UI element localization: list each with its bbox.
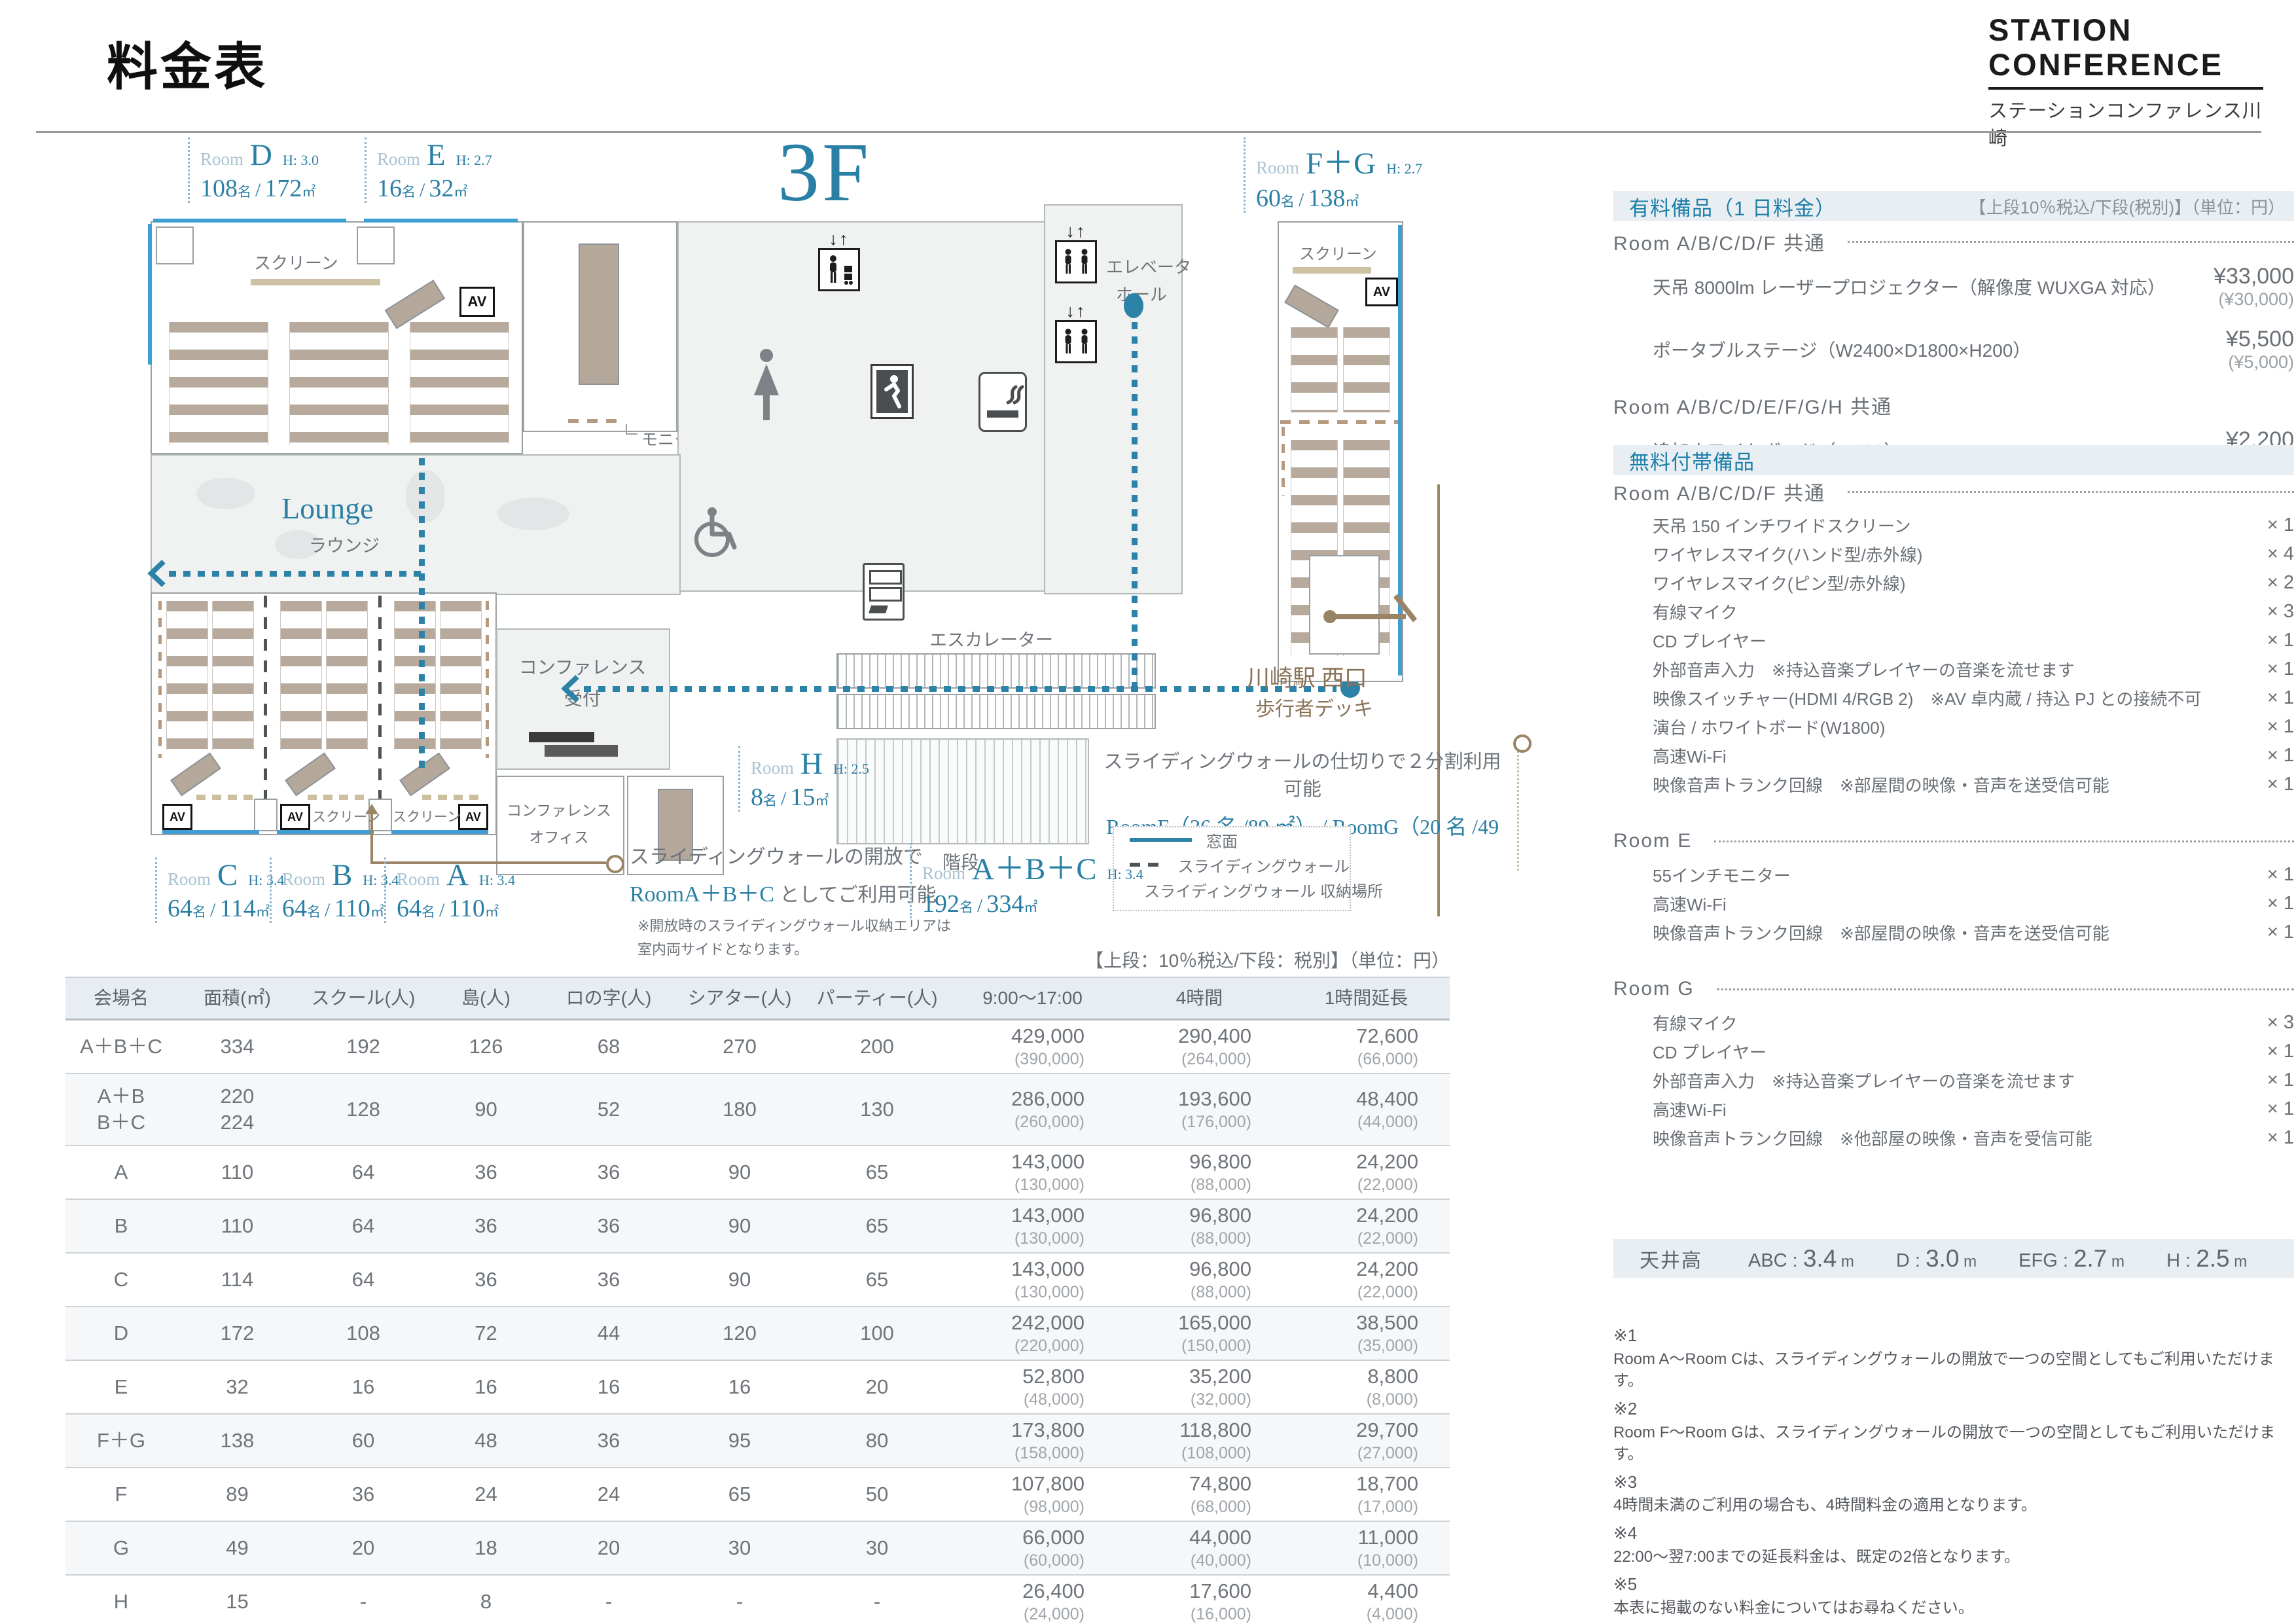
wheelchair-icon: [689, 504, 744, 562]
ceiling-unit: m: [1837, 1253, 1854, 1271]
price-tax-excluded: (260,000): [949, 1112, 1085, 1132]
venue-line: E: [65, 1374, 177, 1400]
room-tag-h: RoomHH: 2.58名/15㎡: [738, 746, 869, 812]
venue-line: D: [65, 1320, 177, 1346]
price-tax-included: ¥33,000: [2214, 264, 2294, 289]
price-table: 会場名面積(㎡)スクール(人)島(人)ロの字(人)シアター(人)パーティー(人)…: [65, 977, 1450, 1624]
cell-area: 89: [177, 1481, 298, 1507]
room-tag-height: H: 2.5: [833, 761, 869, 777]
cell-island: 36: [429, 1213, 543, 1239]
venue-line: B＋C: [65, 1110, 177, 1136]
free-equipment-title: 無料付帯備品: [1629, 446, 1755, 475]
cell-theater: 270: [674, 1034, 805, 1060]
free-equipment-item: 映像音声トランク回線 ※部屋間の映像・音声を送受信可能× 1: [1613, 918, 2294, 947]
free-item-qty: × 1: [2209, 630, 2294, 651]
price-tax-included: 29,700: [1283, 1418, 1418, 1443]
free-item-name: 映像音声トランク回線 ※部屋間の映像・音声を送受信可能: [1613, 772, 2209, 797]
cell-venue: A＋B＋C: [65, 1034, 177, 1060]
room-tag-area-num: 138: [1308, 185, 1345, 212]
free-equipment-item: ワイヤレスマイク(ハンド型/赤外線)× 4: [1613, 539, 2294, 568]
footnote-mark: ※2: [1613, 1397, 2294, 1422]
sliding-wall-storage: [1280, 420, 1398, 424]
legend: 窓面スライディングウォールスライディングウォール 収納場所: [1113, 826, 1351, 911]
room-tag-area-num: 15: [790, 784, 815, 811]
cell-area: 138: [177, 1428, 298, 1454]
free-item-qty: × 1: [2209, 1098, 2294, 1120]
price-tax-excluded: (17,000): [1283, 1497, 1418, 1517]
room-tag-a: RoomAH: 3.464名/110㎡: [384, 857, 515, 923]
room-tag-fg: RoomF＋GH: 2.760名/138㎡: [1244, 137, 1422, 213]
equipment-group-heading-text: Room E: [1613, 830, 1692, 852]
price-tax-excluded: (98,000): [949, 1497, 1085, 1517]
table-row: F＋G1386048369580173,800(158,000)118,800(…: [65, 1415, 1450, 1468]
room-tag-letter: E: [427, 138, 446, 172]
venue-line: G: [65, 1535, 177, 1561]
cell-theater: 95: [674, 1428, 805, 1454]
free-item-qty: × 1: [2209, 514, 2294, 536]
cell-school: 16: [298, 1374, 429, 1400]
equipment-group-heading: Room A/B/C/D/F 共通: [1613, 228, 2294, 255]
price-tax-included: 96,800: [1116, 1203, 1251, 1229]
price-tax-excluded: (130,000): [949, 1282, 1085, 1303]
sliding-wall-storage: [486, 601, 489, 758]
price-tax-excluded: (22,000): [1283, 1229, 1418, 1249]
cell-price-ext: 24,200(22,000): [1283, 1149, 1450, 1195]
room-tag-line1: RoomBH: 3.4: [282, 857, 399, 893]
av-box: AV: [459, 287, 495, 317]
room-tag-area-num: 32: [429, 175, 454, 202]
brand-subtitle: ステーションコンファレンス川崎: [1988, 96, 2263, 151]
dotted-leader: [1848, 491, 2294, 493]
ceiling-value: ABC : 3.4 m: [1748, 1258, 1854, 1269]
price-tax-included: 38,500: [1283, 1310, 1418, 1336]
av-box: AV: [1365, 278, 1398, 306]
ceiling-number: 2.7: [2073, 1245, 2107, 1272]
free-item-qty: × 1: [2209, 716, 2294, 738]
lounge-label-en: Lounge: [281, 491, 374, 526]
cell-venue: D: [65, 1320, 177, 1346]
room-tag-capacity: 60名/138㎡: [1256, 184, 1422, 213]
brand-line1: STATION: [1988, 13, 2263, 48]
room-tag-letter: B: [332, 858, 352, 892]
free-item-name: 高速Wi-Fi: [1613, 892, 2209, 916]
free-equipment-item: 有線マイク× 3: [1613, 597, 2294, 626]
cell-price-ext: 29,700(27,000): [1283, 1418, 1450, 1464]
cell-party: 130: [805, 1096, 949, 1123]
window-line: [364, 219, 518, 223]
ceiling-unit: m: [1959, 1253, 1977, 1271]
paid-item-price: ¥5,500(¥5,000): [2226, 327, 2294, 372]
free-item-name: 外部音声入力 ※持込音楽プレイヤーの音楽を流せます: [1613, 657, 2209, 681]
room-tag-capacity-unit: 名: [422, 904, 435, 920]
cell-island: 18: [429, 1535, 543, 1561]
venue-line: A＋B＋C: [65, 1034, 177, 1060]
equipment-group-heading: Room A/B/C/D/E/F/G/H 共通: [1613, 391, 2294, 419]
legend-item-label: スライディングウォール 収納場所: [1144, 878, 1383, 901]
cell-theater: -: [674, 1589, 805, 1615]
table-row: F893624246550107,800(98,000)74,800(68,00…: [65, 1468, 1450, 1522]
cell-ro: 36: [543, 1428, 674, 1454]
price-tax-included: 35,200: [1116, 1364, 1251, 1390]
price-tax-included: 173,800: [949, 1418, 1085, 1443]
column-header: 1時間延長: [1283, 986, 1450, 1010]
venue-line: C: [65, 1267, 177, 1293]
cell-school: 20: [298, 1535, 429, 1561]
abc-open-note: スライディングウォールの開放で RoomA＋B＋C としてご利用可能 ※開放時の…: [630, 840, 951, 959]
office-label: コンファレンス オフィス: [500, 797, 618, 852]
cell-theater: 90: [674, 1213, 805, 1239]
seating-rows: [1343, 327, 1390, 412]
free-equipment-list: Room A/B/C/D/F 共通天吊 150 インチワイドスクリーン× 1ワイ…: [1613, 478, 2294, 1181]
free-item-name: ワイヤレスマイク(ピン型/赤外線): [1613, 571, 2209, 595]
room-tag-slash: /: [1299, 189, 1304, 211]
free-equipment-item: 映像スイッチャー(HDMI 4/RGB 2) ※AV 卓内蔵 / 持込 PJ と…: [1613, 683, 2294, 712]
cell-venue: A: [65, 1159, 177, 1185]
route-line: [419, 458, 425, 772]
free-item-qty: × 1: [2209, 1041, 2294, 1062]
room-tag-line1: RoomA＋B＋CH: 3.4: [922, 843, 1143, 888]
cell-price-4h: 96,800(88,000): [1116, 1149, 1283, 1195]
cell-price-4h: 44,000(40,000): [1116, 1525, 1283, 1571]
footnote-mark: ※1: [1613, 1324, 2294, 1348]
cell-area: 15: [177, 1589, 298, 1615]
free-item-qty: × 1: [2209, 893, 2294, 914]
sliding-wall-storage: [158, 601, 162, 758]
room-tag-b: RoomBH: 3.464名/110㎡: [270, 857, 399, 923]
room-tag-area-num: 172: [264, 175, 302, 202]
room-tag-capacity-unit: 名: [763, 793, 777, 808]
cell-ro: 24: [543, 1481, 674, 1507]
room-tag-area-num: 114: [219, 895, 256, 922]
cell-price-ext: 4,400(4,000): [1283, 1579, 1450, 1624]
cell-venue: E: [65, 1374, 177, 1400]
free-item-name: 天吊 150 インチワイドスクリーン: [1613, 513, 2209, 537]
ceiling-unit: m: [2107, 1253, 2125, 1271]
dotted-leader: [1848, 241, 2294, 243]
room-tag-height: H: 3.4: [479, 872, 515, 888]
column-header: パーティー(人): [805, 986, 949, 1010]
table-header-row: 会場名面積(㎡)スクール(人)島(人)ロの字(人)シアター(人)パーティー(人)…: [65, 977, 1450, 1020]
equipment-group-heading: Room G: [1613, 975, 2294, 1003]
seating-rows: [326, 601, 368, 750]
screen-mark: [422, 795, 482, 800]
room-tag-prefix: Room: [377, 149, 420, 169]
paid-equipment-tax-note: 【上段10％税込/下段(税別)】（単位：円）: [1969, 194, 2285, 219]
room-tag-height: H: 2.7: [1386, 160, 1422, 177]
station-label-1: 川崎駅 西口: [1247, 660, 1367, 693]
cell-island: 90: [429, 1096, 543, 1123]
office-label-1: コンファレンス: [500, 797, 618, 824]
price-tax-included: 96,800: [1116, 1257, 1251, 1282]
cell-area: 32: [177, 1374, 298, 1400]
room-tag-line1: RoomCH: 3.4: [168, 857, 284, 893]
cell-party: -: [805, 1589, 949, 1615]
room-tag-prefix: Room: [1256, 158, 1299, 177]
footnote-mark: ※3: [1613, 1470, 2294, 1495]
room-tag-capacity: 8名/15㎡: [751, 783, 869, 812]
vending-machine-icon: [863, 563, 905, 621]
cell-area: 172: [177, 1320, 298, 1346]
free-item-name: 有線マイク: [1613, 1011, 2209, 1035]
price-tax-included: 8,800: [1283, 1364, 1418, 1390]
room-tag-line1: RoomEH: 2.7: [377, 137, 492, 173]
area-line: 172: [177, 1320, 298, 1346]
venue-line: F＋G: [65, 1428, 177, 1454]
station-label-2: 歩行者デッキ: [1255, 693, 1373, 721]
cell-price-day: 173,800(158,000): [949, 1418, 1116, 1464]
price-tax-excluded: (10,000): [1283, 1551, 1418, 1571]
room-tag-area-unit: ㎡: [256, 904, 270, 920]
cell-venue: G: [65, 1535, 177, 1561]
seating-rows: [289, 322, 389, 445]
free-item-qty: × 3: [2209, 1012, 2294, 1034]
room-tag-letter: H: [800, 747, 823, 781]
room-tag-capacity-unit: 名: [402, 184, 416, 200]
seating-rows: [169, 322, 268, 445]
free-equipment-item: 外部音声入力 ※持込音楽プレイヤーの音楽を流せます× 1: [1613, 1066, 2294, 1094]
screen-bar: [251, 279, 380, 285]
cell-price-ext: 24,200(22,000): [1283, 1203, 1450, 1249]
price-tax-included: 11,000: [1283, 1525, 1418, 1551]
price-tax-included: 143,000: [949, 1149, 1085, 1175]
cell-price-ext: 24,200(22,000): [1283, 1257, 1450, 1303]
area-line: 89: [177, 1481, 298, 1507]
price-tax-included: 290,400: [1116, 1024, 1251, 1049]
area-line: 110: [177, 1159, 298, 1185]
route-line: [1132, 322, 1138, 689]
price-tax-included: 96,800: [1116, 1149, 1251, 1175]
table-row: A＋B＋C33419212668270200429,000(390,000)29…: [65, 1020, 1450, 1074]
price-tax-excluded: (¥30,000): [2214, 289, 2294, 310]
route-line: [169, 571, 422, 577]
area-line: 138: [177, 1428, 298, 1454]
price-tax-included: 24,200: [1283, 1149, 1418, 1175]
screen-mark: [308, 795, 368, 800]
free-equipment-bar: 無料付帯備品: [1613, 445, 2294, 475]
cell-school: 36: [298, 1481, 429, 1507]
cell-price-4h: 96,800(88,000): [1116, 1257, 1283, 1303]
escalator: [836, 653, 1156, 689]
cell-price-day: 286,000(260,000): [949, 1087, 1116, 1132]
cell-price-day: 143,000(130,000): [949, 1203, 1116, 1249]
price-tax-excluded: (158,000): [949, 1443, 1085, 1464]
price-tax-excluded: (40,000): [1116, 1551, 1251, 1571]
price-tax-included: 66,000: [949, 1525, 1085, 1551]
room-tag-prefix: Room: [200, 149, 243, 169]
room-tag-c: RoomCH: 3.464名/114㎡: [155, 857, 284, 923]
cell-venue: A＋BB＋C: [65, 1083, 177, 1136]
price-tax-excluded: (4,000): [1283, 1604, 1418, 1624]
price-tax-excluded: (60,000): [949, 1551, 1085, 1571]
cell-party: 100: [805, 1320, 949, 1346]
seating-rows: [212, 601, 254, 750]
price-tax-included: 143,000: [949, 1257, 1085, 1282]
av-box: AV: [458, 804, 488, 830]
room-tag-e: RoomEH: 2.716名/32㎡: [365, 137, 492, 203]
room-tag-capacity-num: 8: [751, 784, 763, 811]
equipment-group-heading: Room E: [1613, 827, 2294, 855]
column-header: シアター(人): [674, 986, 805, 1010]
cell-theater: 16: [674, 1374, 805, 1400]
equipment-group-heading-text: Room A/B/C/D/F 共通: [1613, 477, 1825, 506]
paid-equipment-group: Room A/B/C/D/F 共通天吊 8000lm レーザープロジェクター（解…: [1613, 228, 2294, 381]
note-connector-circle: [1513, 734, 1532, 753]
room-tag-prefix: Room: [168, 869, 211, 889]
lounge-decor: [406, 470, 445, 522]
column-header: 9:00～17:00: [949, 986, 1116, 1010]
ceiling-value: EFG : 2.7 m: [2018, 1258, 2125, 1269]
price-tax-excluded: (130,000): [949, 1175, 1085, 1195]
price-tax-included: ¥5,500: [2226, 327, 2294, 352]
room-tag-area-num: 110: [334, 895, 370, 922]
room-tag-slash: /: [255, 179, 260, 201]
cell-venue: H: [65, 1589, 177, 1615]
column-header: 面積(㎡): [177, 986, 298, 1010]
price-tax-included: 72,600: [1283, 1024, 1418, 1049]
cell-price-day: 107,800(98,000): [949, 1471, 1116, 1517]
free-item-name: 外部音声入力 ※持込音楽プレイヤーの音楽を流せます: [1613, 1068, 2209, 1092]
ceiling-unit: m: [2230, 1253, 2248, 1271]
room-tag-line1: RoomF＋GH: 2.7: [1256, 137, 1422, 183]
area-line: 110: [177, 1213, 298, 1239]
footnote-text: Room F～Room Gは、スライディングウォールの開放で一つの空間としてもご…: [1613, 1422, 2294, 1466]
note-connector-arrow: [365, 804, 378, 814]
price-tax-included: 52,800: [949, 1364, 1085, 1390]
route-arrow-left: [147, 559, 166, 591]
free-item-name: 映像音声トランク回線 ※部屋間の映像・音声を送受信可能: [1613, 920, 2209, 945]
venue-line: B: [65, 1213, 177, 1239]
price-tax-excluded: (35,000): [1283, 1336, 1418, 1356]
cell-school: 64: [298, 1159, 429, 1185]
cell-ro: 68: [543, 1034, 674, 1060]
cell-theater: 65: [674, 1481, 805, 1507]
cell-island: 36: [429, 1159, 543, 1185]
ceiling-key: H :: [2166, 1250, 2196, 1271]
price-tax-included: 242,000: [949, 1310, 1085, 1336]
free-item-qty: × 1: [2209, 922, 2294, 943]
seating-rows: [280, 601, 322, 750]
cell-price-4h: 193,600(176,000): [1116, 1087, 1283, 1132]
window-line: [153, 219, 346, 223]
abc-open-note-2a: RoomA＋B＋C: [630, 882, 774, 907]
free-equipment-item: 外部音声入力 ※持込音楽プレイヤーの音楽を流せます× 1: [1613, 655, 2294, 683]
cell-price-4h: 74,800(68,000): [1116, 1471, 1283, 1517]
price-tax-excluded: (16,000): [1116, 1604, 1251, 1624]
room-tag-capacity-unit: 名: [307, 904, 321, 920]
room-tag-capacity: 64名/110㎡: [397, 894, 515, 923]
ceiling-height-label: 天井高: [1640, 1244, 1702, 1273]
price-tax-excluded: (24,000): [949, 1604, 1085, 1624]
free-item-name: 高速Wi-Fi: [1613, 1097, 2209, 1121]
cell-price-day: 143,000(130,000): [949, 1149, 1116, 1195]
free-item-qty: × 3: [2209, 601, 2294, 623]
room-tag-capacity-num: 64: [168, 895, 192, 922]
cell-ro: 52: [543, 1096, 674, 1123]
price-tax-excluded: (8,000): [1283, 1390, 1418, 1410]
footnote-mark: ※4: [1613, 1521, 2294, 1546]
area-line: 49: [177, 1535, 298, 1561]
room-tag-prefix: Room: [282, 869, 325, 889]
room-tag-capacity-num: 16: [377, 175, 402, 202]
price-tax-excluded: (220,000): [949, 1336, 1085, 1356]
free-item-qty: × 1: [2209, 864, 2294, 886]
office-label-2: オフィス: [500, 824, 618, 851]
cell-price-day: 52,800(48,000): [949, 1364, 1116, 1410]
free-equipment-group: Room A/B/C/D/F 共通天吊 150 インチワイドスクリーン× 1ワイ…: [1613, 478, 2294, 799]
cell-ro: 36: [543, 1159, 674, 1185]
area-line: 15: [177, 1589, 298, 1615]
dotted-leader: [1717, 988, 2294, 990]
cell-school: -: [298, 1589, 429, 1615]
note-connector: [370, 812, 373, 863]
ceiling-value: D : 3.0 m: [1896, 1258, 1977, 1269]
abc-open-note-1: スライディングウォールの開放で: [630, 840, 951, 869]
cell-ro: 36: [543, 1213, 674, 1239]
reception-label: コンファレンス 受付: [517, 652, 648, 714]
price-tax-included: 193,600: [1116, 1087, 1251, 1112]
cell-price-ext: 18,700(17,000): [1283, 1471, 1450, 1517]
room-tag-slash: /: [325, 899, 330, 921]
price-tax-excluded: (66,000): [1283, 1049, 1418, 1070]
table-row: B1106436369065143,000(130,000)96,800(88,…: [65, 1200, 1450, 1254]
brand-logo: STATION CONFERENCE ステーションコンファレンス川崎: [1988, 13, 2263, 151]
legend-item-label: スライディングウォール: [1178, 854, 1350, 876]
room-tag-slash: /: [439, 899, 444, 921]
room-tag-abc: RoomA＋B＋CH: 3.4192名/334㎡: [910, 843, 1143, 918]
emergency-exit-icon: [870, 364, 914, 419]
paid-item-price: ¥33,000(¥30,000): [2214, 264, 2294, 310]
route-dot: [1124, 293, 1143, 318]
cell-price-4h: 290,400(264,000): [1116, 1024, 1283, 1070]
equipment-group-heading: Room A/B/C/D/F 共通: [1613, 478, 2294, 505]
route-arrow-left: [560, 674, 580, 706]
price-tax-included: 107,800: [949, 1471, 1085, 1497]
cell-island: 16: [429, 1374, 543, 1400]
price-tax-included: 4,400: [1283, 1579, 1418, 1604]
venue-line: H: [65, 1589, 177, 1615]
brand-underline: [1988, 87, 2263, 90]
dotted-leader: [1714, 840, 2294, 842]
free-equipment-item: 天吊 150 インチワイドスクリーン× 1: [1613, 511, 2294, 539]
room-tag-capacity-unit: 名: [960, 899, 973, 915]
footnote-text: 4時間未満のご利用の場合も、4時間料金の適用となります。: [1613, 1494, 2294, 1517]
screen-label: スクリーン: [254, 250, 338, 274]
legend-item: スライディングウォール: [1114, 852, 1350, 877]
footnote-text: 本表に掲載のない料金についてはお尋ねください。: [1613, 1597, 2294, 1619]
screen-label: スクリーン: [1299, 241, 1377, 264]
wall-pocket: [254, 799, 278, 831]
free-item-qty: × 1: [2209, 774, 2294, 795]
cell-price-4h: 165,000(150,000): [1116, 1310, 1283, 1356]
ceiling-key: ABC :: [1748, 1250, 1803, 1271]
paid-item-name: 天吊 8000lm レーザープロジェクター（解像度 WUXGA 対応）: [1613, 274, 2214, 300]
seating-rows: [1291, 327, 1338, 412]
column-header: 島(人): [429, 986, 543, 1010]
room-tag-height: H: 3.0: [283, 152, 319, 168]
room-tag-area-num: 334: [986, 890, 1024, 918]
brand-line2: CONFERENCE: [1988, 48, 2263, 82]
price-tax-excluded: (390,000): [949, 1049, 1085, 1070]
cell-island: 72: [429, 1320, 543, 1346]
free-item-qty: × 2: [2209, 572, 2294, 594]
price-tax-excluded: (150,000): [1116, 1336, 1251, 1356]
price-tax-excluded: (¥5,000): [2226, 352, 2294, 372]
legend-item: 窓面: [1114, 827, 1350, 852]
cell-school: 108: [298, 1320, 429, 1346]
table-row: H15-8---26,400(24,000)17,600(16,000)4,40…: [65, 1576, 1450, 1624]
paid-equipment-bar: 有料備品（1 日料金） 【上段10％税込/下段(税別)】（単位：円）: [1613, 191, 2294, 221]
cell-theater: 30: [674, 1535, 805, 1561]
